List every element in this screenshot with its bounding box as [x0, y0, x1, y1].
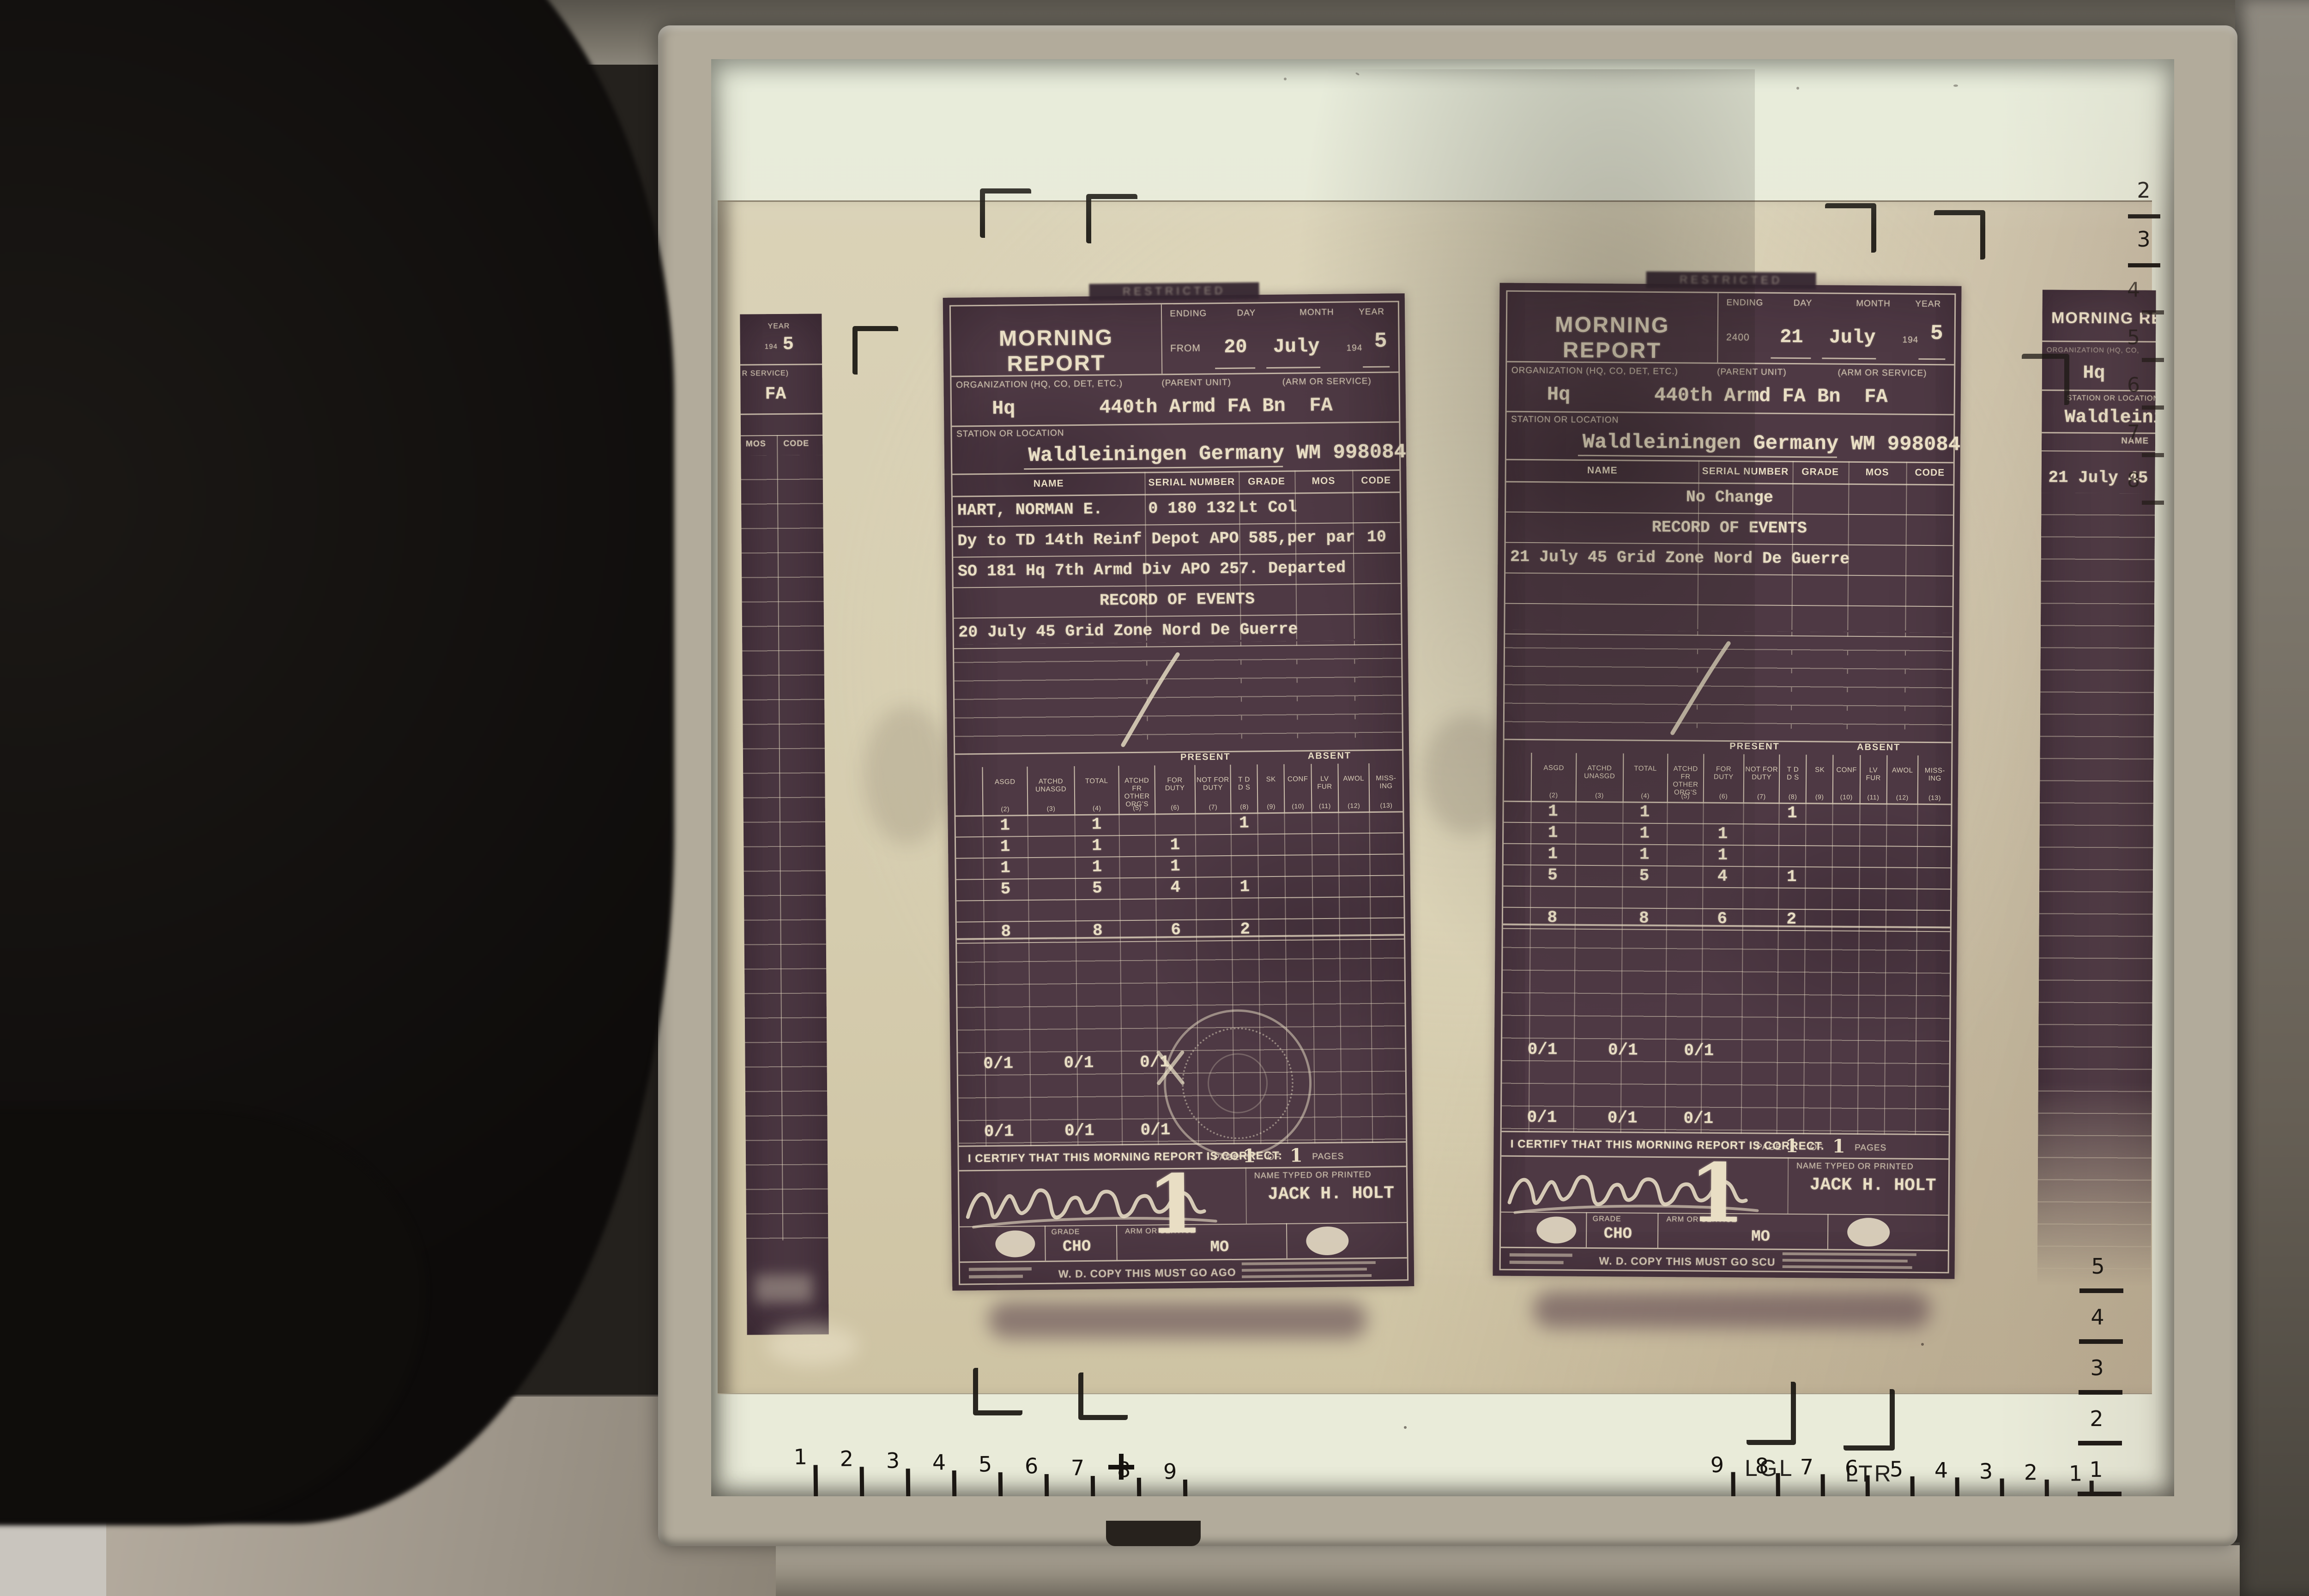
ruler-tick: [2079, 1288, 2123, 1293]
microfilm-reader-photo: Roll/Fi YEAR 194 5 R SERVICE) FA MOS COD…: [0, 0, 2309, 1596]
screen-bezel: YEAR 194 5 R SERVICE) FA MOS CODE MORNIN…: [658, 25, 2237, 1546]
ruler-tick: [2079, 1390, 2122, 1395]
ruler-tick: [2078, 1441, 2122, 1445]
reader-screen: YEAR 194 5 R SERVICE) FA MOS CODE MORNIN…: [711, 59, 2174, 1496]
ruler-number: 2: [2090, 1406, 2103, 1431]
ruler-number: 4: [2091, 1305, 2104, 1330]
ruler-number: 1: [2089, 1457, 2103, 1482]
ruler-tick: [2079, 1339, 2123, 1344]
right-ruler-bottom: 54321: [711, 59, 2174, 1496]
ruler-number: 3: [2090, 1355, 2103, 1380]
machine-right-panel: [2235, 0, 2309, 1596]
ruler-number: 5: [2091, 1254, 2104, 1279]
ruler-tick: [2078, 1492, 2122, 1496]
film-carrier-tab: [1106, 1521, 1201, 1546]
